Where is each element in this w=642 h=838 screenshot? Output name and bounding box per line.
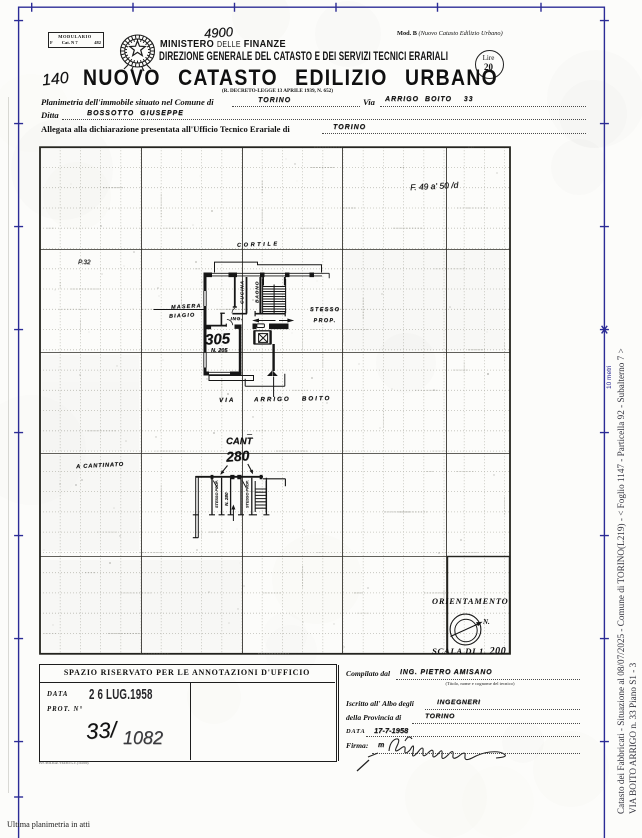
svg-text:CUCINA: CUCINA [240,280,246,304]
svg-text:BAGNO: BAGNO [255,281,261,303]
